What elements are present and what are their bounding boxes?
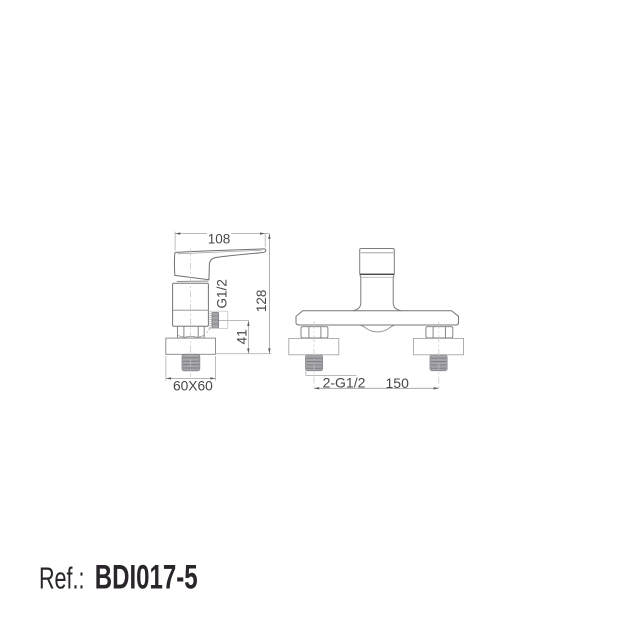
svg-text:G1/2: G1/2	[214, 279, 229, 308]
svg-text:60X60: 60X60	[173, 379, 213, 394]
svg-text:108: 108	[208, 231, 231, 246]
svg-text:Ref.:: Ref.:	[39, 560, 85, 595]
svg-text:2-G1/2: 2-G1/2	[323, 374, 366, 390]
svg-text:41: 41	[235, 329, 250, 344]
svg-text:BDI017-5: BDI017-5	[95, 559, 198, 597]
svg-text:150: 150	[386, 375, 410, 391]
svg-text:128: 128	[254, 290, 269, 313]
